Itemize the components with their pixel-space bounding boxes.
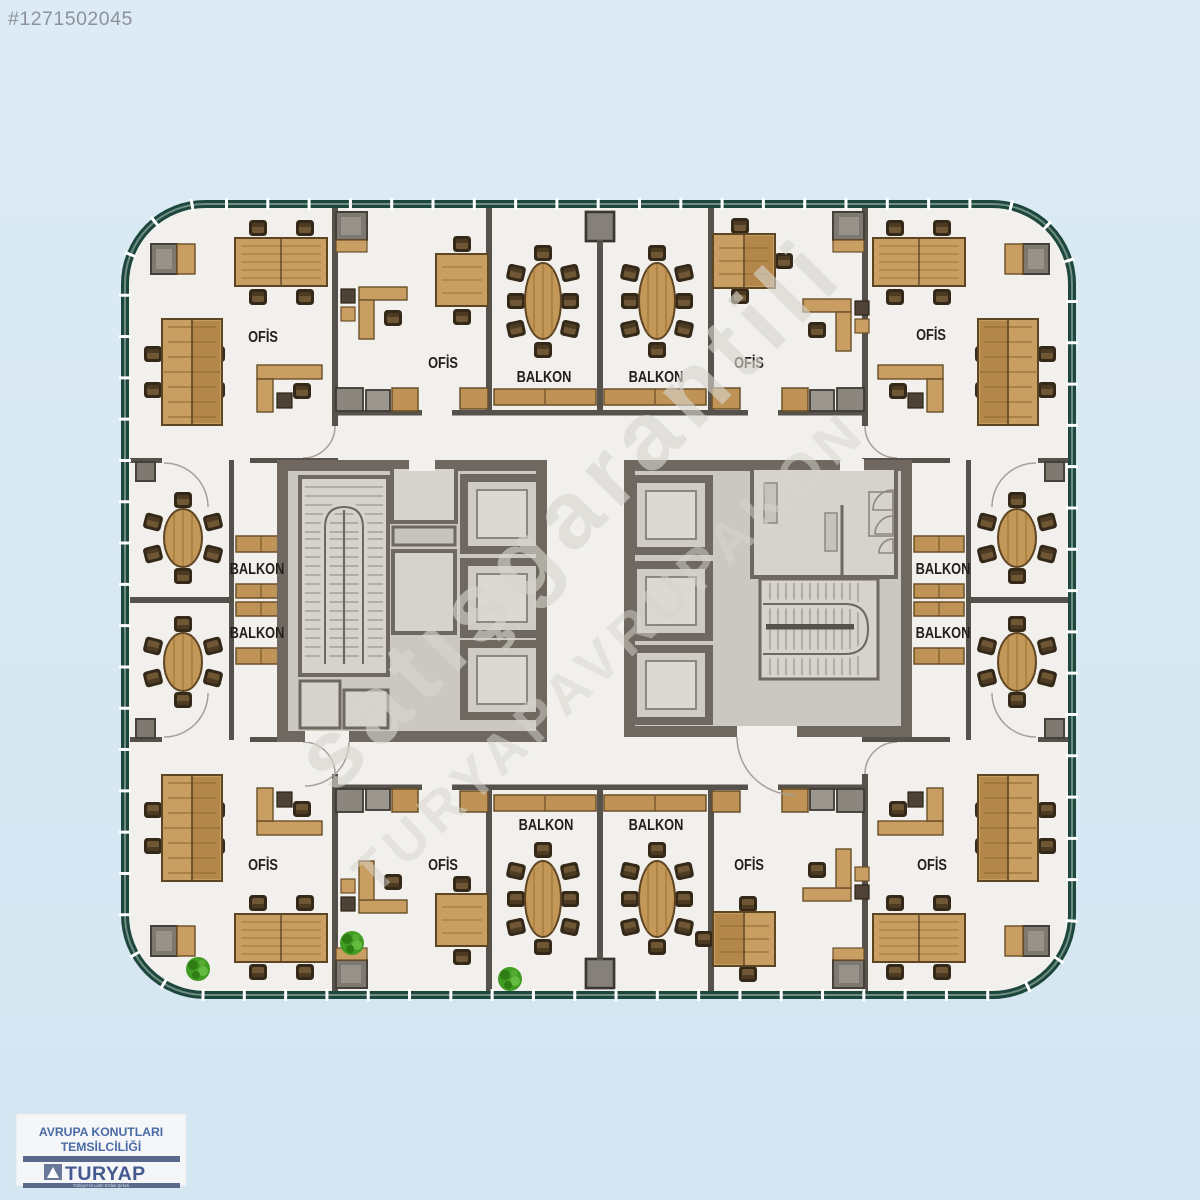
svg-text:BALKON: BALKON [519, 817, 574, 835]
svg-text:OFİS: OFİS [248, 328, 278, 347]
svg-text:BALKON: BALKON [916, 625, 971, 643]
svg-text:AVRUPA KONUTLARI: AVRUPA KONUTLARI [39, 1125, 163, 1139]
svg-text:TEMSİLCİLİĞİ: TEMSİLCİLİĞİ [61, 1139, 142, 1154]
svg-text:Türkiye'nin Lider Emlak Şirket: Türkiye'nin Lider Emlak Şirketi [73, 1183, 129, 1188]
svg-text:#1271502045: #1271502045 [8, 8, 133, 30]
svg-text:BALKON: BALKON [230, 625, 285, 643]
svg-text:OFİS: OFİS [916, 326, 946, 345]
svg-text:BALKON: BALKON [517, 369, 572, 387]
svg-text:OFİS: OFİS [917, 856, 947, 875]
svg-text:BALKON: BALKON [629, 817, 684, 835]
svg-text:BALKON: BALKON [230, 561, 285, 579]
svg-text:OFİS: OFİS [248, 856, 278, 875]
svg-text:OFİS: OFİS [428, 354, 458, 373]
svg-text:BALKON: BALKON [916, 561, 971, 579]
svg-text:OFİS: OFİS [734, 856, 764, 875]
svg-text:TURYAP: TURYAP [65, 1163, 146, 1185]
